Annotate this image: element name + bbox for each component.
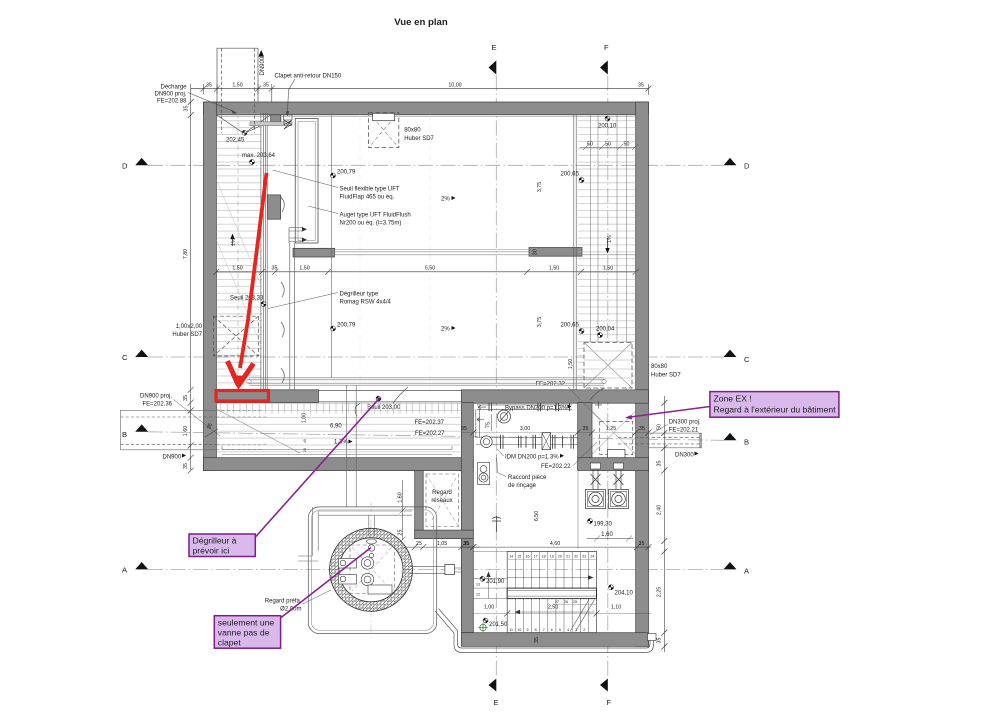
svg-text:Seuil flexible type UFT: Seuil flexible type UFT (340, 187, 400, 193)
svg-text:3,00: 3,00 (520, 426, 530, 432)
svg-text:F: F (607, 698, 612, 707)
svg-text:C: C (122, 353, 128, 362)
svg-text:B: B (744, 438, 749, 447)
svg-text:35: 35 (272, 265, 278, 271)
svg-text:15: 15 (517, 555, 521, 559)
svg-text:6,50: 6,50 (534, 511, 540, 521)
svg-text:Zone EX !: Zone EX ! (714, 394, 752, 404)
svg-text:26: 26 (564, 600, 568, 604)
svg-text:3,75: 3,75 (537, 182, 543, 192)
svg-text:12: 12 (476, 593, 480, 597)
svg-text:FE=202.36: FE=202.36 (142, 402, 172, 408)
svg-text:1,00: 1,00 (302, 413, 308, 423)
svg-text:FE=202.88: FE=202.88 (157, 98, 187, 104)
svg-text:201,50: 201,50 (489, 622, 508, 628)
svg-text:16: 16 (526, 555, 530, 559)
svg-text:1,60: 1,60 (183, 426, 189, 436)
svg-text:2,25: 2,25 (657, 587, 663, 597)
svg-text:200,04: 200,04 (596, 326, 615, 332)
svg-text:Auget type UFT FluidFlush: Auget type UFT FluidFlush (340, 213, 411, 219)
svg-text:Seuil 203,33: Seuil 203,33 (230, 296, 264, 302)
svg-text:6: 6 (551, 628, 553, 632)
svg-text:E: E (494, 698, 499, 707)
svg-text:201,90: 201,90 (486, 579, 505, 585)
svg-text:10: 10 (517, 628, 521, 632)
svg-text:35: 35 (263, 83, 269, 89)
svg-text:5,50: 5,50 (425, 265, 435, 271)
svg-text:Clapet anti-retour DN150: Clapet anti-retour DN150 (275, 74, 342, 80)
svg-text:11: 11 (509, 628, 513, 632)
svg-text:E: E (492, 43, 497, 52)
svg-text:35: 35 (638, 83, 644, 89)
svg-text:19: 19 (550, 555, 554, 559)
svg-text:5: 5 (559, 628, 561, 632)
svg-text:20: 20 (303, 448, 307, 452)
svg-text:8: 8 (535, 628, 537, 632)
svg-text:seulement une: seulement une (218, 618, 275, 628)
svg-text:23: 23 (582, 555, 586, 559)
svg-text:1,50: 1,50 (232, 265, 242, 271)
svg-text:25: 25 (416, 541, 422, 547)
svg-text:2%: 2% (441, 327, 450, 333)
svg-text:Regard préfa.: Regard préfa. (265, 599, 302, 605)
svg-text:2: 2 (583, 628, 585, 632)
svg-text:1,00x2,00: 1,00x2,00 (176, 324, 203, 330)
svg-text:Romag RSW 4x4/4: Romag RSW 4x4/4 (340, 300, 392, 306)
svg-text:FluidFlap 465 ou éq.: FluidFlap 465 ou éq. (340, 195, 395, 201)
svg-text:Huber SD7: Huber SD7 (651, 372, 681, 378)
svg-text:Dégrilleur type: Dégrilleur type (340, 292, 379, 298)
svg-text:80x80: 80x80 (651, 364, 668, 370)
svg-text:prévoir ici: prévoir ici (193, 546, 230, 556)
svg-text:FE=202.22: FE=202.22 (541, 464, 571, 470)
svg-text:35: 35 (639, 426, 645, 432)
svg-text:1,50: 1,50 (568, 359, 574, 369)
svg-text:2,50: 2,50 (548, 605, 558, 611)
svg-text:21: 21 (566, 555, 570, 559)
svg-text:Vue en plan: Vue en plan (394, 17, 448, 28)
svg-text:200,10: 200,10 (598, 123, 617, 129)
svg-text:FE=202.37: FE=202.37 (415, 420, 445, 426)
svg-text:50: 50 (657, 424, 663, 430)
svg-text:Huber SD7: Huber SD7 (172, 332, 202, 338)
svg-text:7: 7 (543, 628, 545, 632)
svg-text:max. 203,64: max. 203,64 (242, 153, 276, 159)
svg-text:199,30: 199,30 (594, 522, 613, 528)
svg-text:50: 50 (624, 141, 630, 147)
svg-text:200,65: 200,65 (561, 323, 580, 329)
svg-text:1,50: 1,50 (549, 265, 559, 271)
svg-text:1%: 1% (607, 235, 613, 243)
svg-text:4: 4 (567, 628, 569, 632)
svg-text:1,60: 1,60 (601, 532, 613, 538)
svg-text:10,00: 10,00 (448, 83, 461, 89)
svg-text:35: 35 (206, 83, 212, 89)
svg-text:vanne pas de: vanne pas de (218, 628, 270, 638)
svg-text:75: 75 (486, 422, 492, 428)
svg-text:Huber SD7: Huber SD7 (404, 136, 434, 142)
svg-text:3,75: 3,75 (537, 317, 543, 327)
svg-text:1,25: 1,25 (606, 426, 616, 432)
svg-text:1,05: 1,05 (437, 541, 447, 547)
svg-text:DN900: DN900 (163, 455, 182, 461)
svg-text:réseaux: réseaux (431, 498, 452, 504)
svg-text:DN900 proj.: DN900 proj. (140, 394, 172, 400)
svg-text:13: 13 (476, 583, 480, 587)
svg-text:F: F (604, 43, 609, 52)
svg-text:Raccord pièce: Raccord pièce (508, 475, 547, 481)
svg-text:de rinçage: de rinçage (508, 483, 537, 489)
svg-text:Dégrilleur à: Dégrilleur à (193, 536, 237, 546)
svg-text:30: 30 (533, 249, 539, 255)
svg-text:17: 17 (534, 555, 538, 559)
svg-text:80x80: 80x80 (404, 128, 421, 134)
svg-text:6,90: 6,90 (330, 424, 342, 430)
svg-text:DN300 proj.: DN300 proj. (669, 420, 701, 426)
svg-text:B: B (122, 430, 127, 439)
svg-text:1,10: 1,10 (611, 605, 621, 611)
svg-text:35: 35 (534, 637, 540, 643)
svg-text:24: 24 (590, 555, 594, 559)
svg-text:50: 50 (605, 141, 611, 147)
svg-text:FE=202.21: FE=202.21 (669, 428, 699, 434)
svg-text:FE=202.27: FE=202.27 (415, 431, 445, 437)
svg-text:50: 50 (587, 141, 593, 147)
svg-text:D: D (122, 162, 128, 171)
svg-text:35: 35 (583, 426, 589, 432)
svg-text:9: 9 (527, 628, 529, 632)
svg-text:35: 35 (461, 426, 467, 432)
svg-text:DN300: DN300 (675, 453, 694, 459)
svg-text:40: 40 (303, 439, 307, 443)
svg-text:35: 35 (657, 461, 663, 467)
svg-text:2%: 2% (441, 197, 450, 203)
svg-text:4,60: 4,60 (550, 541, 560, 547)
svg-text:35: 35 (639, 541, 645, 547)
svg-text:D: D (744, 162, 750, 171)
svg-text:Bypass DN200 p=1.3%: Bypass DN200 p=1.3% (505, 406, 568, 412)
svg-text:35: 35 (657, 638, 663, 644)
svg-text:clapet: clapet (218, 638, 242, 648)
svg-text:Regard à l'extérieur du bâtime: Regard à l'extérieur du bâtiment (714, 405, 837, 415)
svg-text:1,00: 1,00 (484, 605, 494, 611)
svg-text:35: 35 (463, 541, 469, 547)
svg-text:7,80: 7,80 (183, 249, 189, 259)
svg-text:Nr200 ou éq. (l=3.75m): Nr200 ou éq. (l=3.75m) (340, 221, 402, 227)
svg-text:22: 22 (574, 555, 578, 559)
svg-text:20: 20 (558, 555, 562, 559)
svg-text:2,40: 2,40 (657, 505, 663, 515)
svg-text:35: 35 (184, 106, 190, 112)
svg-text:25: 25 (573, 600, 577, 604)
svg-text:1%: 1% (231, 238, 237, 246)
svg-text:1,50: 1,50 (232, 83, 242, 89)
svg-text:200,65: 200,65 (561, 172, 580, 178)
svg-text:200,79: 200,79 (337, 322, 356, 328)
svg-text:35: 35 (183, 463, 189, 469)
svg-text:18: 18 (542, 555, 546, 559)
svg-text:1,50: 1,50 (299, 265, 309, 271)
svg-text:204,10: 204,10 (615, 591, 634, 597)
svg-text:DN900: DN900 (260, 56, 266, 75)
svg-text:FE=202.32: FE=202.32 (536, 382, 566, 388)
svg-text:35: 35 (183, 395, 189, 401)
svg-text:14: 14 (509, 555, 513, 559)
svg-text:202,45: 202,45 (226, 138, 245, 144)
svg-text:IDM DN200 p=1.3%: IDM DN200 p=1.3% (505, 455, 559, 461)
svg-text:200,79: 200,79 (337, 169, 356, 175)
svg-text:Décharge: Décharge (160, 84, 187, 90)
svg-text:Regard: Regard (432, 490, 452, 496)
svg-text:DN900 proj.: DN900 proj. (154, 91, 186, 97)
svg-text:C: C (744, 355, 750, 364)
